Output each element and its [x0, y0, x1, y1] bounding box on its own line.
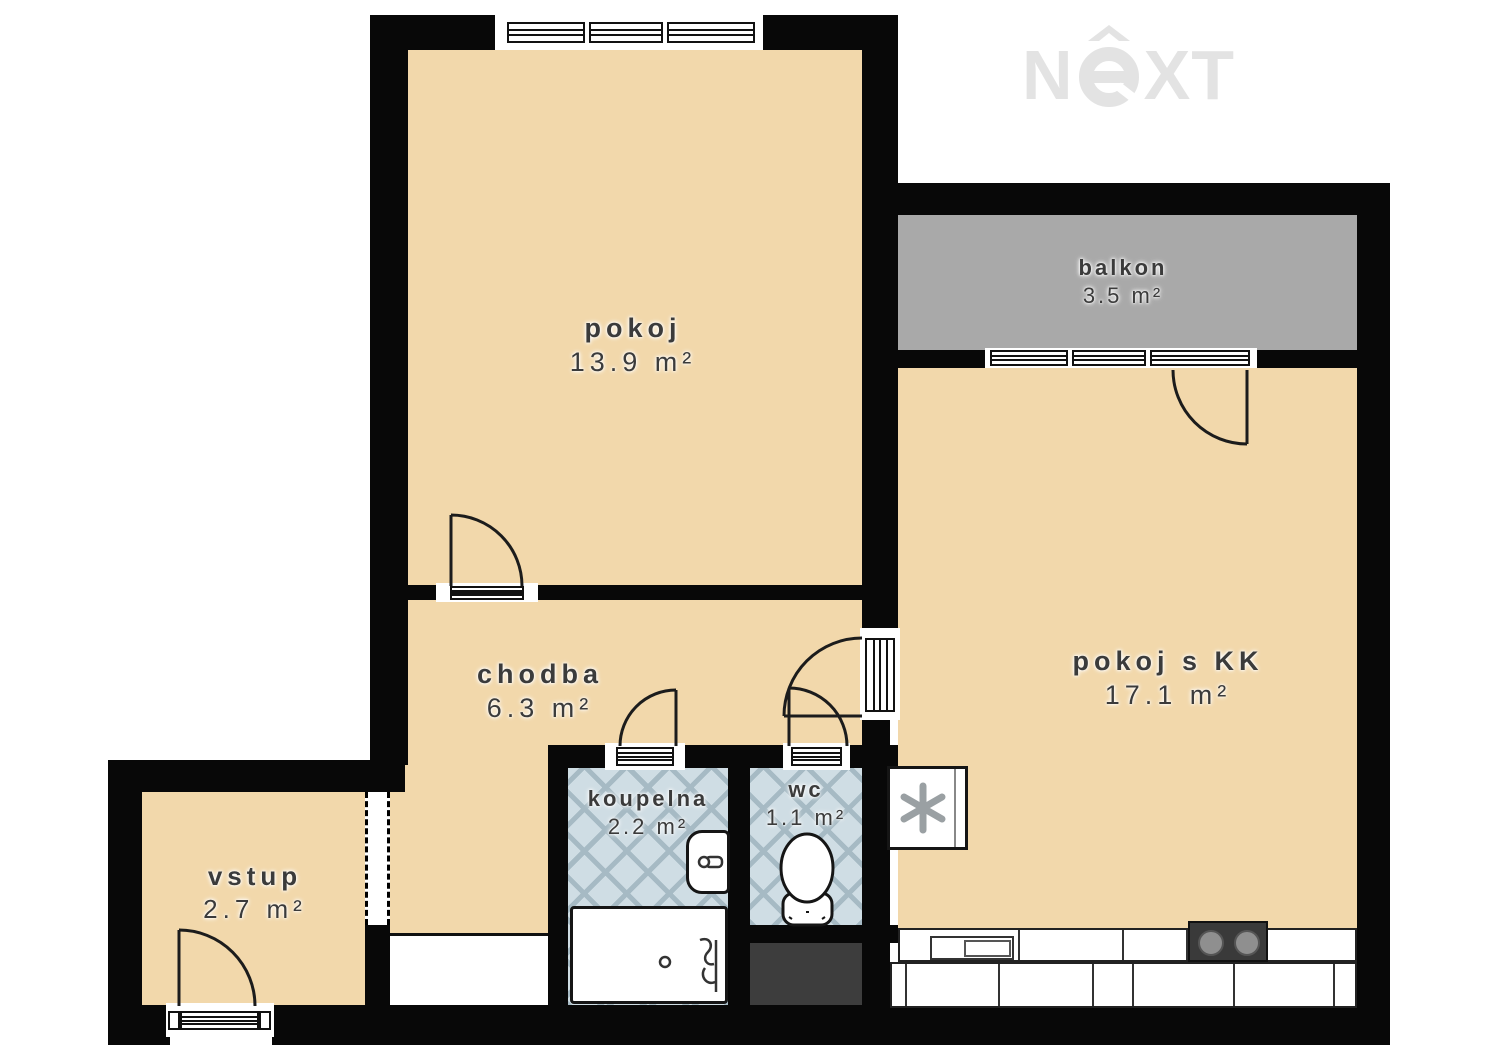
room-name: pokoj	[483, 312, 783, 346]
wall	[1357, 183, 1390, 1043]
wall	[548, 745, 568, 1008]
cabinet-divider	[1092, 964, 1094, 1006]
wall	[728, 745, 750, 1008]
room-chodba-lower	[388, 748, 550, 933]
room-area: 1.1 m²	[750, 804, 862, 832]
wall	[272, 1005, 1390, 1045]
label-pokoj: pokoj 13.9 m²	[483, 312, 783, 380]
logo-letter-n: N	[1022, 36, 1074, 114]
counter-divider	[1122, 930, 1124, 960]
kitchen-cabinets	[890, 962, 1357, 1008]
room-area: 2.2 m²	[568, 813, 728, 841]
fridge-door-line	[954, 769, 956, 847]
window-balkon-pane	[1072, 350, 1146, 366]
kitchen-sink-bowl	[964, 940, 1011, 957]
ventilation-shaft	[750, 943, 862, 1005]
logo-letters-xt: XT	[1144, 36, 1235, 114]
label-chodba: chodba 6.3 m²	[390, 658, 690, 726]
cabinet-divider	[1233, 964, 1235, 1006]
cabinet-divider	[998, 964, 1000, 1006]
room-name: wc	[750, 776, 862, 804]
cabinet-divider	[905, 964, 907, 1006]
window-pokoj-pane	[589, 22, 663, 43]
door-koupelna-panel	[616, 747, 674, 766]
room-area: 3.5 m²	[973, 282, 1273, 310]
wall	[862, 183, 1390, 215]
entry-door-jamb	[259, 1011, 271, 1030]
wall	[370, 15, 408, 600]
cooktop-burner	[1198, 930, 1224, 956]
door-wc-panel	[791, 747, 842, 766]
label-wc: wc 1.1 m²	[750, 776, 862, 831]
entry-door-jamb	[168, 1011, 180, 1030]
room-area: 17.1 m²	[1018, 679, 1318, 713]
entry-door-panel	[180, 1011, 259, 1030]
logo-e-icon	[1078, 24, 1140, 110]
door-kk-panel	[865, 638, 895, 712]
floor-plan: pokoj 13.9 m² balkon 3.5 m² pokoj s KK 1…	[0, 0, 1500, 1060]
bathtub	[570, 906, 728, 1004]
room-area: 13.9 m²	[483, 346, 783, 380]
balcony-door-panel	[1150, 350, 1250, 366]
wall	[108, 1005, 170, 1045]
window-pokoj-pane	[507, 22, 585, 43]
room-name: pokoj s KK	[1018, 645, 1318, 679]
wall	[875, 215, 890, 368]
wall	[536, 585, 862, 600]
room-name: balkon	[973, 254, 1273, 282]
label-vstup: vstup 2.7 m²	[105, 860, 405, 925]
cabinet-divider	[1132, 964, 1134, 1006]
room-area: 2.7 m²	[105, 893, 405, 926]
label-koupelna: koupelna 2.2 m²	[568, 785, 728, 840]
room-name: chodba	[390, 658, 690, 692]
cabinet-divider	[1333, 964, 1335, 1006]
window-pokoj-pane	[667, 22, 755, 43]
door-pokoj-panel	[450, 586, 524, 600]
next-logo: N XT	[1022, 24, 1235, 114]
wall	[1255, 350, 1357, 368]
counter-divider	[1018, 930, 1020, 960]
window-balkon-pane	[990, 350, 1068, 366]
wall	[108, 760, 405, 792]
label-pokoj-s-kk: pokoj s KK 17.1 m²	[1018, 645, 1318, 713]
room-name: koupelna	[568, 785, 728, 813]
cooktop-burner	[1234, 930, 1260, 956]
room-name: vstup	[105, 860, 405, 893]
wall	[875, 350, 987, 368]
wall	[365, 925, 390, 1008]
room-area: 6.3 m²	[390, 692, 690, 726]
wardrobe	[390, 933, 548, 1008]
wall	[849, 745, 898, 768]
label-balkon: balkon 3.5 m²	[973, 254, 1273, 309]
wall	[750, 925, 898, 943]
